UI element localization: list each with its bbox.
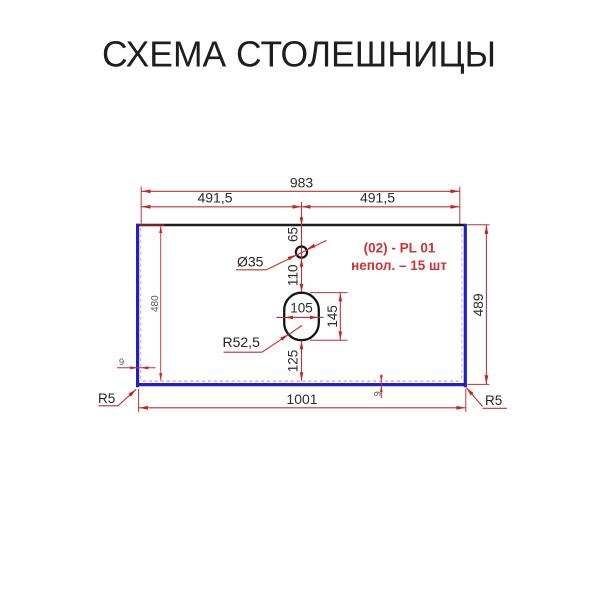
svg-text:105: 105 [290,301,313,316]
svg-text:491,5: 491,5 [197,190,232,206]
svg-text:491,5: 491,5 [360,190,395,206]
svg-text:480: 480 [150,295,161,312]
svg-text:(02) - PL 01: (02) - PL 01 [364,241,436,256]
svg-text:489: 489 [470,293,486,317]
svg-text:Ø35: Ø35 [237,253,264,269]
svg-text:непол. – 15 шт: непол. – 15 шт [351,258,447,273]
svg-text:983: 983 [290,175,314,191]
svg-text:9: 9 [119,357,124,368]
svg-text:СХЕМА СТОЛЕШНИЦЫ: СХЕМА СТОЛЕШНИЦЫ [102,34,496,75]
svg-text:1001: 1001 [286,391,317,407]
svg-text:125: 125 [286,350,301,373]
svg-text:R52,5: R52,5 [223,334,261,350]
svg-text:110: 110 [286,265,301,287]
svg-text:145: 145 [325,305,340,328]
svg-text:R5: R5 [98,391,115,406]
svg-text:65: 65 [286,227,301,242]
svg-text:9: 9 [373,391,383,396]
svg-text:R5: R5 [485,393,502,408]
